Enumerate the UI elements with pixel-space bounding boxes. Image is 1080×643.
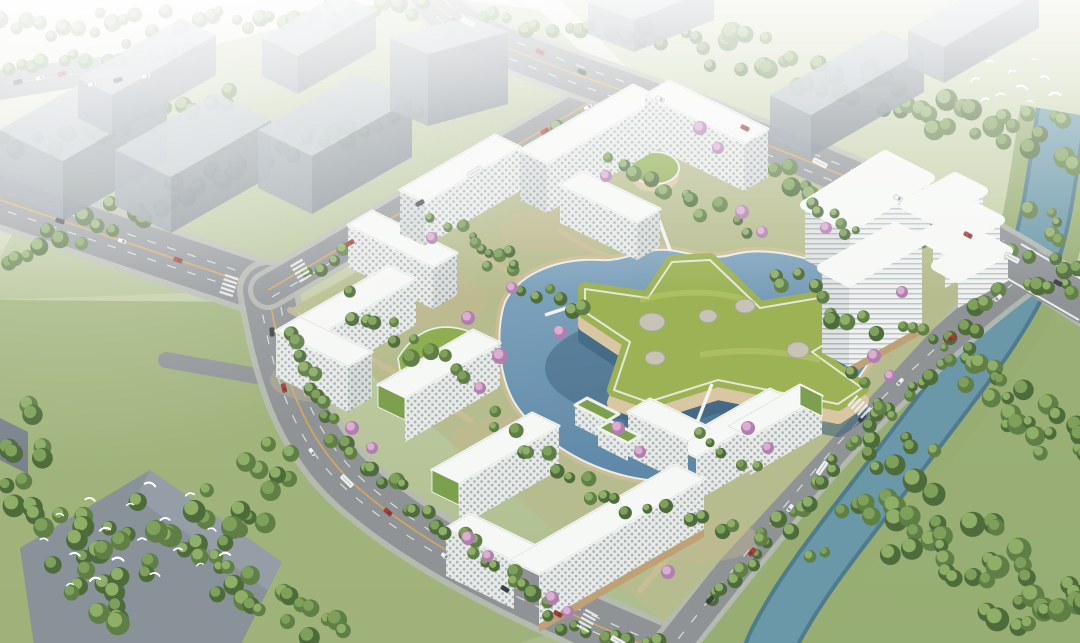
tree-highlight (232, 502, 244, 514)
tree-highlight (35, 518, 48, 531)
tree-highlight (858, 495, 869, 506)
tree-highlight (660, 499, 669, 508)
rendering-canvas (0, 0, 1080, 643)
tree-highlight (398, 479, 405, 486)
tree-highlight (65, 586, 75, 596)
tree-highlight (256, 513, 269, 526)
blossom-highlight (763, 443, 770, 450)
tree-highlight (1022, 617, 1031, 626)
tree-highlight (706, 439, 712, 445)
tree-highlight (863, 508, 875, 520)
tree-highlight (716, 524, 725, 533)
tree (988, 519, 1005, 536)
blossom-highlight (612, 422, 621, 431)
tree (489, 560, 500, 571)
blossom-tree (762, 442, 774, 454)
tree-highlight (863, 447, 872, 456)
tree (839, 314, 856, 331)
tree-highlight (771, 511, 782, 522)
blossom-tree (611, 421, 625, 435)
tree-highlight (695, 428, 702, 435)
tree-highlight (146, 521, 160, 535)
blossom-tree (562, 606, 574, 618)
tree (336, 623, 351, 638)
tree-highlight (599, 491, 607, 499)
tree-highlight (1039, 395, 1052, 408)
tree-highlight (716, 448, 723, 455)
tree (982, 388, 1001, 407)
tree (994, 374, 1007, 387)
tree-highlight (556, 624, 564, 632)
haze-topleft (0, 0, 560, 470)
tree-highlight (923, 370, 933, 380)
tree-highlight (423, 506, 432, 515)
tree (714, 583, 727, 596)
tree (177, 542, 192, 557)
tree (862, 446, 877, 461)
tree-highlight (937, 359, 944, 366)
tree (733, 562, 748, 577)
tree-highlight (565, 473, 572, 480)
tree (971, 354, 989, 372)
tree (716, 448, 727, 459)
tree-highlight (899, 322, 906, 329)
blossom-tree (634, 446, 646, 458)
tree-highlight (1014, 380, 1027, 393)
blossom-highlight (563, 607, 570, 614)
tree-highlight (620, 507, 628, 515)
tree (694, 427, 706, 439)
tree (770, 511, 787, 528)
tree-highlight (828, 464, 836, 472)
tree-highlight (860, 378, 867, 385)
tree (52, 507, 68, 523)
tree-highlight (600, 632, 609, 641)
tree-highlight (840, 315, 850, 325)
tree-highlight (824, 313, 835, 324)
tree-highlight (0, 479, 10, 489)
tree (609, 493, 620, 504)
tree (960, 512, 985, 537)
tree (106, 612, 130, 636)
tree-highlight (78, 562, 89, 573)
tree (863, 431, 881, 449)
tree-highlight (888, 411, 895, 418)
tree (581, 471, 596, 486)
tree (1013, 380, 1034, 401)
tree (15, 473, 32, 490)
tree-highlight (1026, 427, 1038, 439)
tree (524, 585, 542, 603)
tree (255, 513, 276, 534)
tree-highlight (1045, 428, 1053, 436)
blossom-tree (461, 531, 475, 545)
tree (406, 504, 420, 518)
tree-highlight (566, 304, 576, 314)
tree (827, 464, 840, 477)
tree-highlight (244, 598, 255, 609)
tree-highlight (210, 587, 220, 597)
tree (438, 526, 452, 540)
tree (3, 494, 26, 517)
tree (397, 479, 408, 490)
tree (542, 610, 553, 621)
tree-highlight (755, 533, 764, 542)
tree-highlight (242, 567, 254, 579)
tree-highlight (189, 535, 201, 547)
tree-highlight (858, 311, 866, 319)
tree-highlight (576, 300, 586, 310)
tree-highlight (737, 460, 744, 467)
tree-highlight (570, 621, 577, 628)
tree-highlight (337, 624, 346, 633)
tree-highlight (218, 536, 228, 546)
tree (903, 439, 918, 454)
tree (191, 548, 208, 565)
tree-highlight (1002, 392, 1010, 400)
tree-highlight (281, 615, 290, 624)
tree-highlight (805, 551, 813, 559)
tree-highlight (74, 517, 88, 531)
tree-highlight (836, 505, 845, 514)
tree-highlight (27, 506, 39, 518)
tree (111, 531, 130, 550)
tree (986, 555, 1010, 579)
tree-highlight (96, 575, 108, 587)
tree-highlight (303, 600, 314, 611)
tree-highlight (209, 550, 218, 559)
tree (145, 520, 168, 543)
tree (901, 538, 923, 560)
tree-highlight (685, 514, 694, 523)
tree (945, 570, 963, 588)
tree (302, 599, 320, 617)
tree (1049, 407, 1066, 424)
tree-highlight (863, 419, 872, 428)
tree (907, 524, 924, 541)
tree (706, 438, 715, 447)
tree (64, 585, 80, 601)
tree (584, 492, 597, 505)
tree-highlight (111, 568, 123, 580)
tree (422, 505, 436, 519)
tree-highlight (262, 481, 275, 494)
tree-highlight (90, 604, 103, 617)
tree-highlight (995, 374, 1003, 382)
tree-highlight (803, 497, 813, 507)
tree (684, 513, 698, 527)
tree-highlight (16, 473, 27, 484)
tree (752, 461, 763, 472)
tree-highlight (142, 554, 153, 565)
tree (209, 586, 225, 602)
tree-highlight (989, 520, 999, 530)
tree (922, 483, 945, 506)
tree (944, 354, 957, 367)
tree (928, 444, 942, 458)
blossom-highlight (742, 422, 751, 431)
tree-highlight (281, 587, 293, 599)
skylight-dome (787, 342, 809, 358)
tree (869, 326, 884, 341)
blossom-highlight (462, 532, 471, 541)
blossom-tree (867, 349, 881, 363)
skylight-dome (639, 313, 665, 331)
tree-highlight (941, 344, 946, 349)
tree (555, 624, 567, 636)
tree (922, 369, 938, 385)
tree-highlight (45, 557, 56, 568)
tree-highlight (987, 608, 1002, 623)
tree-highlight (983, 389, 995, 401)
tree (898, 321, 909, 332)
tree (845, 366, 858, 379)
tree-highlight (968, 299, 979, 310)
tree (1002, 392, 1015, 405)
tree-highlight (53, 508, 63, 518)
tree (783, 523, 799, 539)
tree (748, 559, 760, 571)
blossom-highlight (546, 592, 555, 601)
tree-highlight (874, 402, 883, 411)
tree (280, 614, 295, 629)
tree-highlight (902, 539, 916, 553)
tree-highlight (109, 598, 120, 609)
tree-highlight (900, 506, 914, 520)
tree-highlight (697, 511, 705, 519)
skylight-dome (699, 310, 717, 323)
blossom-highlight (662, 566, 671, 575)
tree-highlight (517, 579, 525, 587)
tree-highlight (468, 547, 476, 555)
tree (44, 556, 62, 574)
tree-highlight (643, 504, 649, 510)
blossom-tree (545, 591, 559, 605)
blossom-tree (741, 421, 755, 435)
tree-highlight (962, 513, 978, 529)
tree-highlight (753, 461, 760, 468)
tree-highlight (95, 541, 107, 553)
tree (754, 533, 768, 547)
tree (870, 461, 884, 475)
tree (802, 496, 818, 512)
tree-highlight (68, 530, 81, 543)
tree-highlight (715, 583, 723, 591)
tree-highlight (964, 343, 972, 351)
tree-highlight (223, 517, 237, 531)
tree (1044, 427, 1057, 440)
tree (736, 460, 747, 471)
tree-highlight (972, 355, 983, 366)
tree-highlight (918, 324, 926, 332)
tree-highlight (816, 476, 825, 485)
tree-highlight (525, 586, 536, 597)
tree (260, 480, 281, 501)
tree (969, 324, 984, 339)
tree (823, 312, 841, 330)
tree-highlight (253, 604, 261, 612)
tree-highlight (407, 505, 415, 513)
tree-highlight (929, 335, 935, 341)
tree (880, 544, 901, 565)
tree-highlight (945, 354, 953, 362)
tree (859, 377, 870, 388)
tree-highlight (959, 320, 969, 330)
tree-highlight (140, 567, 150, 577)
tree (33, 517, 54, 538)
tree-highlight (881, 545, 894, 558)
blossom-highlight (885, 371, 892, 378)
tree-highlight (1014, 596, 1023, 605)
tree-highlight (300, 628, 313, 641)
tree (221, 560, 235, 574)
tree-highlight (935, 540, 944, 549)
tree (575, 300, 591, 316)
tree-highlight (784, 524, 794, 534)
tree (862, 507, 881, 526)
tree-highlight (184, 501, 198, 515)
tree-highlight (543, 611, 550, 618)
tree (917, 324, 929, 336)
blossom-highlight (868, 350, 877, 359)
tree-highlight (820, 547, 827, 554)
tree-highlight (946, 570, 957, 581)
tree-highlight (1015, 557, 1026, 568)
tree-highlight (846, 367, 854, 375)
tree-highlight (585, 493, 593, 501)
tree (241, 566, 260, 585)
tree-highlight (734, 563, 743, 572)
tree-highlight (1050, 408, 1060, 418)
tree-highlight (937, 551, 949, 563)
tree-highlight (871, 462, 880, 471)
skylight-dome (645, 351, 665, 365)
tree (129, 493, 147, 511)
tree (376, 477, 388, 489)
tree-highlight (930, 516, 941, 527)
tree (985, 607, 1009, 631)
tree-highlight (886, 455, 899, 468)
tree-highlight (929, 444, 937, 452)
tree-highlight (1011, 619, 1022, 630)
tree (467, 547, 479, 559)
tree-highlight (901, 432, 908, 439)
tree (200, 483, 214, 497)
tree (726, 519, 739, 532)
tree (183, 500, 206, 523)
tree (908, 382, 918, 392)
tree-highlight (222, 561, 231, 570)
tree (696, 510, 709, 523)
tree-highlight (1008, 539, 1023, 554)
tree-highlight (864, 432, 875, 443)
tree-highlight (886, 509, 901, 524)
tree (1025, 426, 1045, 446)
tree-highlight (1038, 604, 1048, 614)
aerial-rendering (0, 0, 1080, 643)
tree-highlight (1034, 447, 1043, 456)
tree-highlight (328, 611, 341, 624)
tree-highlight (988, 360, 998, 370)
tree-highlight (908, 524, 918, 534)
tree-highlight (609, 493, 616, 500)
tree (835, 504, 850, 519)
tree (1033, 446, 1048, 461)
tree-highlight (1049, 599, 1064, 614)
tree (884, 454, 905, 475)
tree-highlight (958, 377, 968, 387)
tree-highlight (508, 565, 518, 575)
tree-highlight (749, 560, 757, 568)
tree (619, 506, 632, 519)
tree (903, 469, 927, 493)
tree-highlight (4, 495, 18, 509)
tree-highlight (201, 484, 210, 493)
tree (94, 540, 113, 559)
tree-highlight (908, 382, 914, 388)
tree (887, 411, 898, 422)
tree (642, 504, 652, 514)
tree-highlight (904, 440, 913, 449)
tree-highlight (439, 527, 448, 536)
blossom-highlight (483, 551, 490, 558)
tree-highlight (987, 556, 1002, 571)
blossom-highlight (635, 447, 642, 454)
tree (820, 547, 831, 558)
tree (1018, 569, 1036, 587)
skylight-dome (735, 299, 755, 313)
tree-highlight (851, 436, 858, 443)
tree-highlight (582, 472, 591, 481)
tree-highlight (105, 583, 118, 596)
tree-highlight (908, 323, 915, 330)
tree-highlight (108, 613, 123, 628)
tree-highlight (225, 576, 238, 589)
tree (66, 529, 88, 551)
tree (857, 310, 870, 323)
blossom-tree (661, 565, 675, 579)
blossom-tree (884, 370, 896, 382)
tree-highlight (489, 561, 496, 568)
tree-highlight (828, 455, 835, 462)
tree-highlight (970, 324, 979, 333)
tree (873, 401, 887, 415)
tree (1021, 616, 1036, 631)
tree (940, 344, 948, 352)
tree (928, 334, 938, 344)
tree (957, 376, 974, 393)
tree-highlight (934, 527, 947, 540)
tree-highlight (904, 470, 919, 485)
tree-highlight (1019, 570, 1030, 581)
tree (850, 435, 862, 447)
tree (804, 550, 817, 563)
tree (77, 561, 95, 579)
tree-highlight (1008, 414, 1021, 427)
tree-highlight (430, 520, 439, 529)
tree-highlight (377, 478, 384, 485)
tree-highlight (870, 327, 880, 337)
tree-highlight (1024, 417, 1032, 425)
tree (815, 476, 829, 490)
tree-highlight (509, 576, 517, 584)
blossom-tree (482, 550, 494, 562)
tree-highlight (192, 549, 203, 560)
tree-highlight (1023, 585, 1037, 599)
tree (217, 535, 233, 551)
tree (88, 603, 109, 624)
tree (564, 472, 575, 483)
